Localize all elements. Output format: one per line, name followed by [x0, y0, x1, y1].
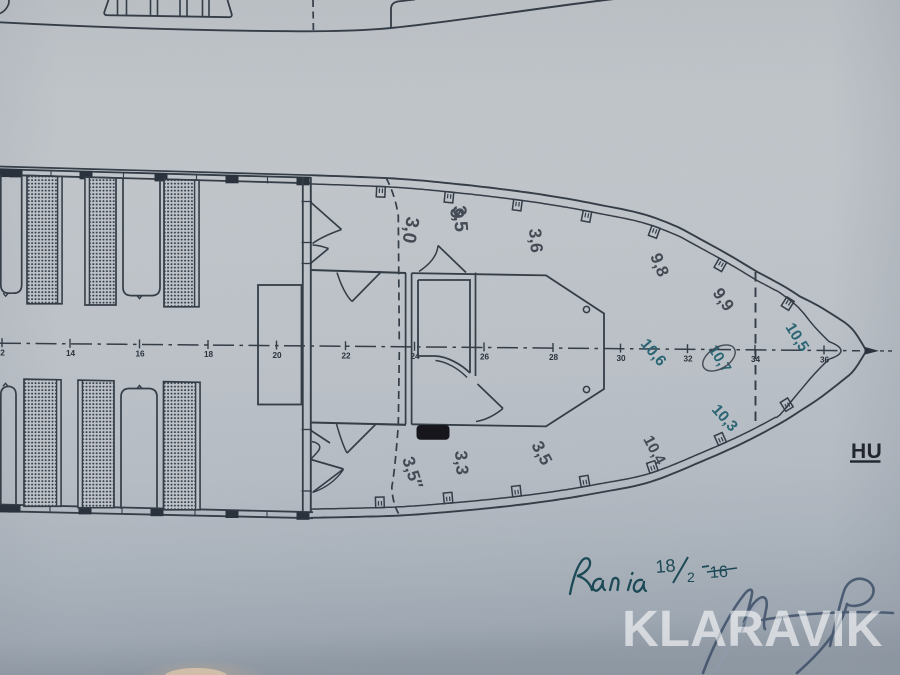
svg-text:28: 28: [549, 353, 559, 362]
svg-text:HU: HU: [851, 440, 882, 463]
svg-text:2: 2: [687, 569, 695, 585]
svg-text:2: 2: [0, 348, 5, 357]
svg-text:22: 22: [341, 351, 351, 360]
svg-text:26: 26: [480, 353, 490, 362]
svg-text:3,3: 3,3: [451, 450, 473, 476]
svg-text:20: 20: [272, 351, 282, 360]
svg-text:14: 14: [66, 349, 76, 358]
svg-text:16: 16: [709, 563, 729, 582]
svg-text:16: 16: [135, 350, 145, 359]
svg-text:KLARAVIK: KLARAVIK: [622, 600, 883, 657]
svg-text:9: 9: [446, 207, 468, 219]
svg-text:3,6: 3,6: [525, 228, 547, 254]
svg-text:30: 30: [616, 354, 626, 363]
svg-text:32: 32: [683, 354, 693, 363]
svg-text:18: 18: [655, 555, 677, 577]
svg-text:18: 18: [204, 350, 214, 359]
svg-text:36: 36: [820, 356, 830, 365]
